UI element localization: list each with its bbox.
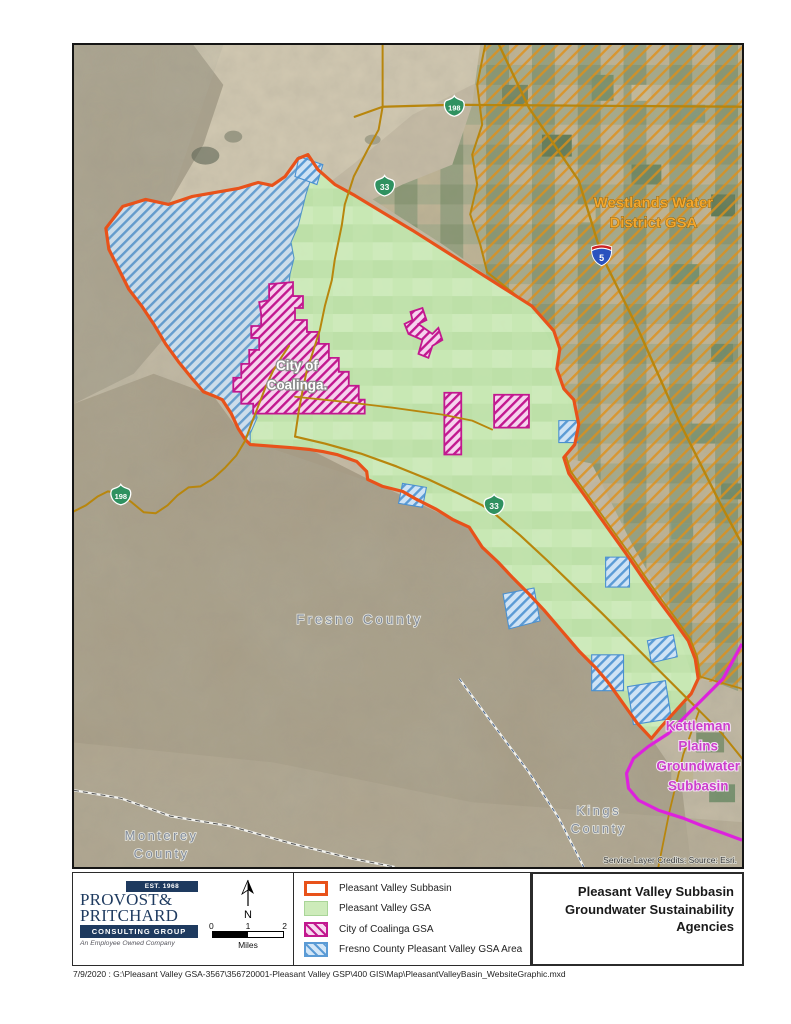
page: Westlands Water District GSA City of Coa… [0,0,791,1024]
fresno-area-swatch [304,942,328,957]
document-path: 7/9/2020 : G:\Pleasant Valley GSA-3567\3… [73,969,566,979]
legend-item-fresno-area: Fresno County Pleasant Valley GSA Area [304,942,526,957]
legend-label: Fresno County Pleasant Valley GSA Area [339,944,522,955]
scale-tick: 1 [246,921,251,931]
scale-bar [212,931,284,938]
svg-text:33: 33 [489,501,499,511]
kings-county-label: County [571,821,627,836]
scale-tick: 2 [282,921,287,931]
coalinga-label: City of [276,358,318,373]
monterey-county-label: Monterey [125,828,199,843]
kettleman-label: Groundwater [656,758,740,773]
map-title-line: Agencies [537,918,734,936]
scale-bar-empty [248,932,283,937]
map-canvas: Westlands Water District GSA City of Coa… [72,43,744,869]
legend-item-coalinga: City of Coalinga GSA [304,922,526,937]
map-footer: EST. 1968 PROVOST& PRITCHARD CONSULTING … [72,872,744,966]
svg-text:198: 198 [115,492,127,501]
westlands-label: Westlands Water [594,194,714,211]
svg-text:5: 5 [599,253,604,263]
map-title-box: Pleasant Valley Subbasin Groundwater Sus… [531,872,744,966]
scale-block: N 0 1 2 Miles [203,873,293,965]
logo-and-scale-box: EST. 1968 PROVOST& PRITCHARD CONSULTING … [72,872,294,966]
logo-consulting-group-bar: CONSULTING GROUP [80,925,198,938]
legend: Pleasant Valley Subbasin Pleasant Valley… [294,872,531,966]
coalinga-swatch [304,922,328,937]
scale-ticks: 0 1 2 [209,921,287,931]
kings-county-label: Kings [576,803,621,818]
logo-tagline: An Employee Owned Company [80,940,201,947]
legend-label: City of Coalinga GSA [339,924,434,935]
legend-item-subbasin: Pleasant Valley Subbasin [304,881,526,896]
svg-text:198: 198 [448,103,460,112]
legend-item-gsa: Pleasant Valley GSA [304,901,526,916]
map-title-line: Groundwater Sustainability [537,901,734,919]
kettleman-label: Plains [678,738,718,753]
scale-bar-filled [213,932,248,937]
gsa-swatch [304,901,328,916]
subbasin-swatch [304,881,328,896]
service-layer-credits: Service Layer Credits: Source: Esri. [603,855,737,865]
logo-name-line2: PRITCHARD [80,908,201,924]
map-title-line: Pleasant Valley Subbasin [537,883,734,901]
scale-unit: Miles [238,940,258,950]
legend-label: Pleasant Valley Subbasin [339,883,452,894]
coalinga-label: Coalinga. [267,378,327,393]
provost-pritchard-logo: EST. 1968 PROVOST& PRITCHARD CONSULTING … [73,873,203,965]
fresno-county-label: Fresno County [296,612,423,627]
kettleman-label: Kettleman [666,718,731,733]
legend-label: Pleasant Valley GSA [339,903,431,914]
kettleman-label: Subbasin [668,778,728,793]
monterey-county-label: County [134,846,190,861]
scale-tick: 0 [209,921,214,931]
svg-text:33: 33 [380,182,390,192]
map-svg: Westlands Water District GSA City of Coa… [74,45,742,867]
north-arrow-icon: N [237,878,259,920]
westlands-label: District GSA [609,214,697,231]
north-label: N [244,909,252,920]
